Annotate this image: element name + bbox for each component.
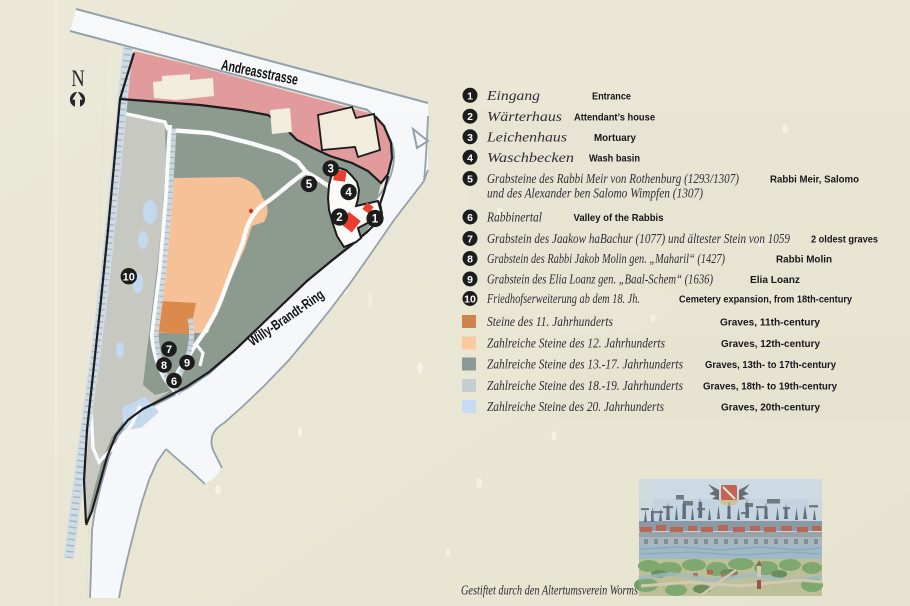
svg-text:und des Alexander ben Salomo W: und des Alexander ben Salomo Wimpfen (13… — [487, 187, 703, 202]
svg-text:Steine des 11. Jahrhunderts: Steine des 11. Jahrhunderts — [487, 315, 613, 330]
svg-text:Eingang: Eingang — [486, 89, 540, 104]
svg-text:5: 5 — [306, 179, 313, 191]
svg-text:Wärterhaus: Wärterhaus — [487, 110, 563, 125]
svg-text:Leichenhaus: Leichenhaus — [486, 131, 568, 146]
svg-text:Rabbi Molin: Rabbi Molin — [776, 255, 832, 266]
svg-text:2 oldest graves: 2 oldest graves — [811, 235, 878, 246]
svg-text:Grabstein des Rabbi Jakob Moli: Grabstein des Rabbi Jakob Molin gen. „Ma… — [487, 252, 725, 267]
svg-text:5: 5 — [467, 174, 473, 186]
svg-text:2: 2 — [467, 111, 473, 123]
svg-text:Graves, 18th- to 19th-century: Graves, 18th- to 19th-century — [703, 382, 837, 393]
svg-text:Zahlreiche Steine des 12. Jahr: Zahlreiche Steine des 12. Jahrhunderts — [487, 337, 665, 352]
svg-text:Graves, 20th-century: Graves, 20th-century — [721, 403, 820, 414]
svg-text:Graves, 12th-century: Graves, 12th-century — [721, 339, 820, 350]
svg-text:9: 9 — [184, 358, 190, 370]
svg-text:4: 4 — [345, 187, 352, 199]
svg-text:4: 4 — [467, 152, 473, 164]
svg-text:Graves, 13th- to 17th-century: Graves, 13th- to 17th-century — [705, 360, 836, 371]
svg-text:Grabstein des Jaakow haBachur: Grabstein des Jaakow haBachur (1077) und… — [487, 232, 790, 247]
svg-text:10: 10 — [464, 294, 476, 306]
svg-text:8: 8 — [161, 360, 167, 372]
svg-text:3: 3 — [467, 132, 473, 144]
svg-text:7: 7 — [467, 234, 473, 246]
svg-text:Wash basin: Wash basin — [589, 154, 640, 165]
svg-text:Rabbinertal: Rabbinertal — [486, 211, 542, 226]
svg-text:10: 10 — [123, 271, 135, 283]
svg-text:Grabsteine des Rabbi Meir von: Grabsteine des Rabbi Meir von Rothenburg… — [487, 172, 739, 187]
svg-text:Valley of the Rabbis: Valley of the Rabbis — [574, 213, 664, 224]
svg-text:7: 7 — [166, 344, 172, 356]
svg-text:Mortuary: Mortuary — [594, 133, 636, 144]
svg-text:2: 2 — [336, 212, 342, 224]
svg-text:1: 1 — [467, 90, 473, 102]
svg-text:Zahlreiche Steine des 20. Jahr: Zahlreiche Steine des 20. Jahrhunderts — [487, 400, 664, 415]
svg-text:Entrance: Entrance — [592, 92, 631, 103]
svg-text:6: 6 — [171, 376, 177, 388]
svg-text:1: 1 — [372, 214, 379, 226]
svg-text:Waschbecken: Waschbecken — [487, 151, 574, 166]
svg-text:Zahlreiche Steine des 13.-17.: Zahlreiche Steine des 13.-17. Jahrhunder… — [487, 358, 683, 373]
svg-text:Rabbi Meir, Salomo: Rabbi Meir, Salomo — [770, 175, 859, 186]
svg-text:Attendant’s house: Attendant’s house — [574, 112, 655, 123]
svg-text:Gestiftet durch den Altertumsv: Gestiftet durch den Altertumsverein Worm… — [461, 584, 638, 599]
svg-text:8: 8 — [467, 254, 473, 266]
svg-text:Friedhofserweiterung ab dem 18: Friedhofserweiterung ab dem 18. Jh. — [486, 292, 640, 307]
svg-text:Zahlreiche Steine des 18.-19.: Zahlreiche Steine des 18.-19. Jahrhunder… — [487, 379, 683, 394]
svg-text:6: 6 — [467, 212, 473, 224]
svg-text:Graves, 11th-century: Graves, 11th-century — [720, 318, 820, 329]
svg-text:Cemetery expansion, from 18th-: Cemetery expansion, from 18th-century — [679, 295, 852, 306]
svg-text:3: 3 — [327, 164, 333, 176]
svg-text:N: N — [71, 66, 85, 91]
svg-text:Grabstein des Elia Loanz gen.: Grabstein des Elia Loanz gen. „Baal-Sche… — [487, 273, 713, 288]
svg-text:9: 9 — [467, 274, 473, 286]
svg-text:Elia Loanz: Elia Loanz — [750, 275, 800, 286]
